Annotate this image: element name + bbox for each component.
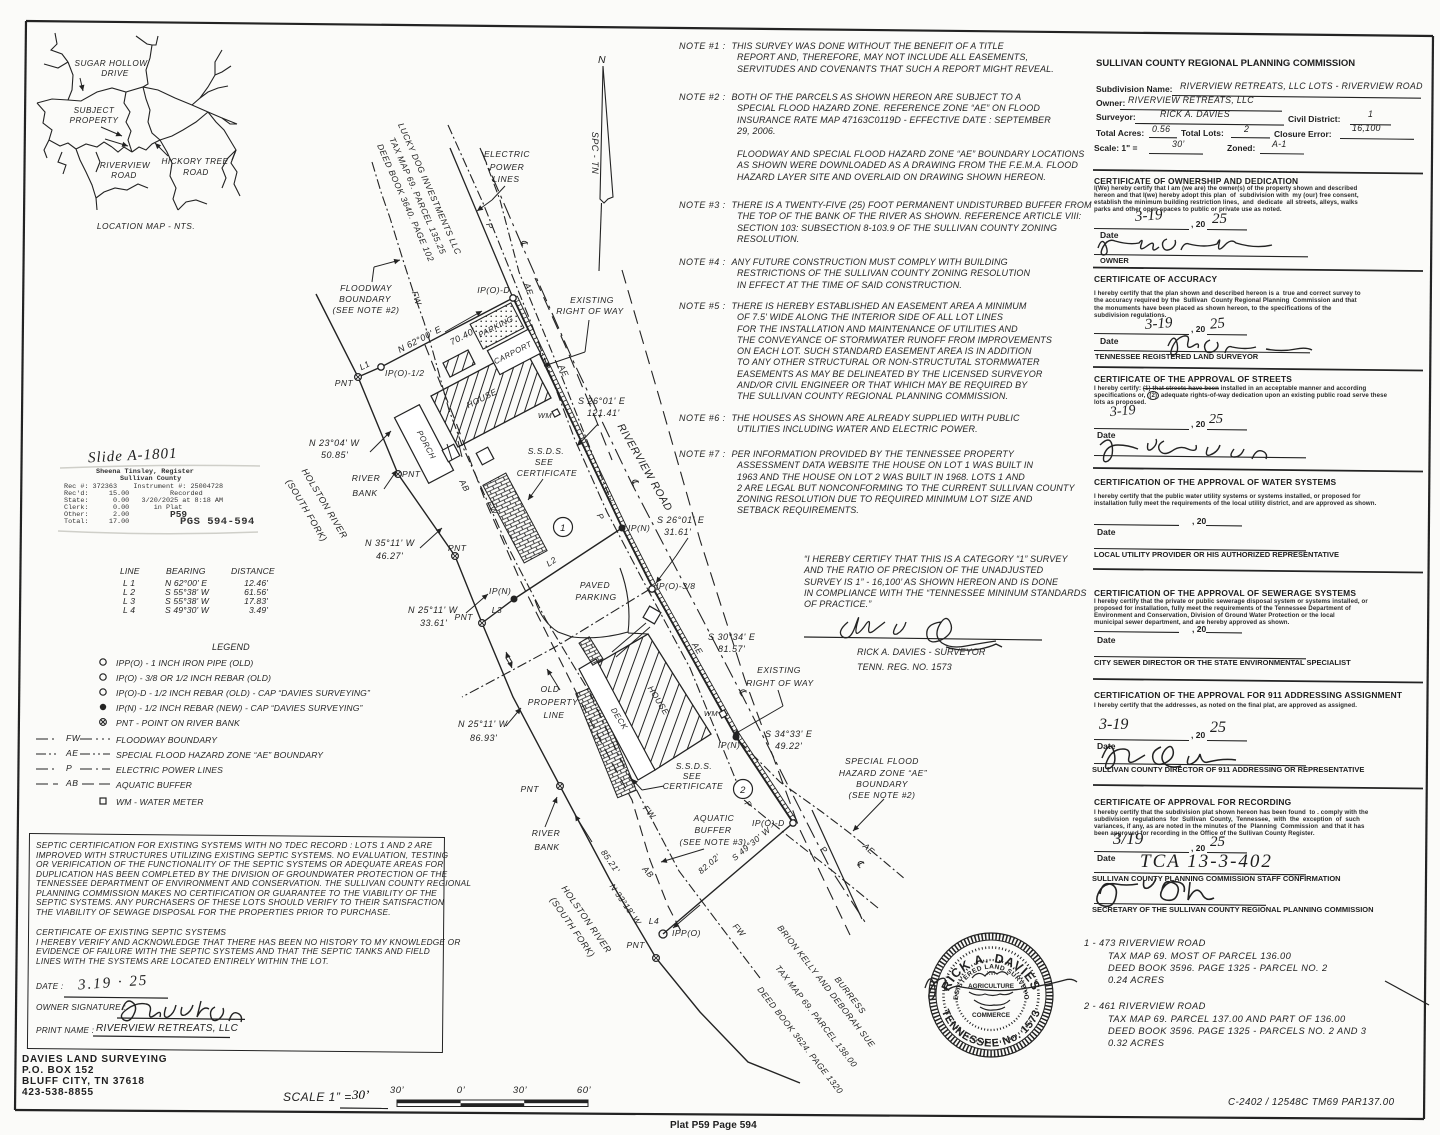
svg-text:P: P bbox=[595, 512, 607, 522]
svg-text:60’: 60’ bbox=[577, 1085, 592, 1096]
svg-text:SEE: SEE bbox=[535, 457, 554, 467]
svg-text:AB: AB bbox=[65, 778, 78, 788]
svg-text:PARKING: PARKING bbox=[575, 592, 616, 602]
svg-text:RIVERVIEW: RIVERVIEW bbox=[100, 161, 151, 170]
svg-text:AB: AB bbox=[640, 863, 656, 880]
svg-text:ROAD: ROAD bbox=[183, 168, 209, 177]
svg-text:(SEE NOTE #2): (SEE NOTE #2) bbox=[333, 305, 400, 315]
svg-text:N 25°11' W: N 25°11' W bbox=[408, 605, 459, 615]
svg-text:CERTIFICATE: CERTIFICATE bbox=[517, 468, 577, 478]
svg-text:PROPERTY: PROPERTY bbox=[528, 697, 579, 707]
svg-text:31.61': 31.61' bbox=[664, 527, 691, 537]
svg-text:85.21': 85.21' bbox=[599, 848, 622, 875]
svg-text:AE: AE bbox=[690, 640, 706, 657]
svg-text:WM: WM bbox=[704, 709, 719, 718]
svg-text:LINES: LINES bbox=[492, 174, 519, 184]
svg-text:1: 1 bbox=[560, 523, 566, 534]
svg-text:WM: WM bbox=[538, 411, 553, 420]
svg-text:PNT: PNT bbox=[455, 612, 474, 622]
svg-text:121.41': 121.41' bbox=[587, 408, 620, 418]
svg-text:33.61': 33.61' bbox=[420, 618, 447, 628]
svg-text:SEE: SEE bbox=[683, 771, 702, 781]
svg-text:DRIVE: DRIVE bbox=[101, 69, 129, 78]
svg-text:HICKORY TREE: HICKORY TREE bbox=[162, 157, 229, 166]
svg-text:RIVER: RIVER bbox=[532, 828, 560, 838]
svg-text:IPP(O): IPP(O) bbox=[672, 928, 701, 938]
svg-text:BANK: BANK bbox=[352, 488, 377, 498]
svg-text:PNT: PNT bbox=[335, 378, 354, 388]
svg-text:BANK: BANK bbox=[534, 842, 559, 852]
svg-text:82.02': 82.02' bbox=[696, 852, 722, 876]
svg-text:IP(N): IP(N) bbox=[489, 586, 511, 596]
svg-text:IP(O)-3/8: IP(O)-3/8 bbox=[656, 581, 695, 591]
svg-text:AE: AE bbox=[860, 840, 877, 856]
svg-text:SUGAR HOLLOW: SUGAR HOLLOW bbox=[75, 59, 149, 68]
svg-text:FW: FW bbox=[66, 733, 81, 743]
svg-text:BOUNDARY: BOUNDARY bbox=[339, 294, 392, 304]
svg-text:FW: FW bbox=[641, 803, 658, 821]
svg-text:PNT: PNT bbox=[521, 784, 540, 794]
svg-text:IP(O)-D: IP(O)-D bbox=[752, 818, 785, 828]
svg-text:SCALE 1” =: SCALE 1” = bbox=[283, 1090, 352, 1104]
svg-text:HAZARD ZONE “AE”: HAZARD ZONE “AE” bbox=[839, 768, 928, 778]
svg-text:N 35°11' W: N 35°11' W bbox=[365, 538, 416, 548]
svg-text:AB: AB bbox=[457, 477, 472, 493]
svg-text:LOCATION MAP - NTS.: LOCATION MAP - NTS. bbox=[97, 221, 195, 231]
svg-text:POWER: POWER bbox=[490, 162, 525, 172]
svg-text:S.S.D.S.: S.S.D.S. bbox=[676, 761, 713, 771]
svg-text:BOUNDARY: BOUNDARY bbox=[856, 779, 909, 789]
svg-text:AE: AE bbox=[556, 362, 571, 378]
svg-text:℄: ℄ bbox=[517, 238, 530, 249]
svg-text:46.27': 46.27' bbox=[376, 551, 403, 561]
svg-text:N 33°18' W: N 33°18' W bbox=[608, 882, 644, 927]
svg-text:ELECTRIC: ELECTRIC bbox=[484, 149, 530, 159]
svg-text:L4: L4 bbox=[649, 916, 659, 926]
svg-text:N 62°00' E: N 62°00' E bbox=[396, 324, 443, 355]
svg-text:N: N bbox=[598, 54, 606, 66]
svg-text:BUFFER: BUFFER bbox=[695, 825, 732, 835]
svg-text:RIVER: RIVER bbox=[352, 473, 380, 483]
svg-text:30’: 30’ bbox=[351, 1087, 369, 1102]
svg-text:(SEE NOTE #3): (SEE NOTE #3) bbox=[680, 837, 747, 847]
svg-text:49.22': 49.22' bbox=[775, 741, 802, 751]
svg-text:IP(O)-D: IP(O)-D bbox=[477, 285, 510, 295]
svg-text:N 25°11' W: N 25°11' W bbox=[458, 719, 509, 729]
svg-text:℄: ℄ bbox=[853, 858, 866, 870]
svg-text:ROAD: ROAD bbox=[111, 171, 137, 180]
svg-text:CERTIFICATE: CERTIFICATE bbox=[663, 781, 723, 791]
svg-text:AE: AE bbox=[65, 748, 78, 758]
svg-text:FW: FW bbox=[731, 921, 748, 939]
svg-text:PNT: PNT bbox=[448, 543, 467, 553]
svg-text:SPC - TN: SPC - TN bbox=[590, 132, 600, 175]
svg-text:0’: 0’ bbox=[457, 1085, 466, 1096]
svg-text:RIVERVIEW ROAD: RIVERVIEW ROAD bbox=[615, 422, 675, 514]
svg-text:86.93': 86.93' bbox=[470, 733, 497, 743]
svg-text:FW: FW bbox=[410, 290, 424, 307]
svg-text:30’: 30’ bbox=[390, 1085, 405, 1096]
svg-text:RIGHT OF WAY: RIGHT OF WAY bbox=[556, 306, 624, 316]
svg-text:SPECIAL FLOOD: SPECIAL FLOOD bbox=[845, 756, 919, 766]
svg-text:RIGHT OF WAY: RIGHT OF WAY bbox=[746, 678, 814, 688]
svg-text:IP(N): IP(N) bbox=[718, 740, 740, 750]
svg-text:LINE: LINE bbox=[544, 710, 565, 720]
svg-text:P: P bbox=[66, 763, 72, 773]
svg-text:S 34°33' E: S 34°33' E bbox=[765, 729, 813, 739]
svg-text:81.57': 81.57' bbox=[718, 644, 745, 654]
svg-text:PAVED: PAVED bbox=[580, 580, 610, 590]
svg-text:S.S.D.S.: S.S.D.S. bbox=[528, 446, 565, 456]
svg-text:PROPERTY: PROPERTY bbox=[70, 116, 119, 125]
svg-text:FLOODWAY: FLOODWAY bbox=[340, 283, 393, 293]
svg-text:(SEE NOTE #2): (SEE NOTE #2) bbox=[849, 790, 916, 800]
svg-text:N 23°04' W: N 23°04' W bbox=[309, 438, 360, 448]
svg-text:L3: L3 bbox=[492, 605, 502, 615]
svg-text:50.85': 50.85' bbox=[321, 450, 348, 460]
svg-text:L2: L2 bbox=[544, 554, 558, 568]
svg-text:EXISTING: EXISTING bbox=[570, 295, 614, 305]
svg-text:2: 2 bbox=[739, 785, 746, 796]
svg-text:(SOUTH FORK): (SOUTH FORK) bbox=[284, 477, 329, 543]
svg-text:S 26°01' E: S 26°01' E bbox=[578, 396, 626, 406]
svg-text:SUBJECT: SUBJECT bbox=[74, 106, 115, 115]
svg-text:AQUATIC: AQUATIC bbox=[693, 813, 735, 823]
svg-text:P: P bbox=[818, 844, 829, 855]
svg-text:L1: L1 bbox=[358, 358, 372, 372]
svg-text:LUCKY DOG INVESTMENTS LLC: LUCKY DOG INVESTMENTS LLC bbox=[396, 121, 464, 256]
svg-text:OLD: OLD bbox=[541, 684, 560, 694]
svg-text:COMMERCE: COMMERCE bbox=[972, 1012, 1011, 1019]
svg-text:℄: ℄ bbox=[736, 687, 749, 699]
svg-text:S 30°34' E: S 30°34' E bbox=[708, 632, 756, 642]
svg-text:IP(N): IP(N) bbox=[628, 523, 650, 533]
svg-text:30’: 30’ bbox=[513, 1085, 528, 1096]
svg-text:PNT: PNT bbox=[402, 469, 421, 479]
svg-text:EXISTING: EXISTING bbox=[757, 665, 801, 675]
svg-text:IP(O)-1/2: IP(O)-1/2 bbox=[385, 368, 424, 378]
svg-text:PNT: PNT bbox=[627, 940, 646, 950]
